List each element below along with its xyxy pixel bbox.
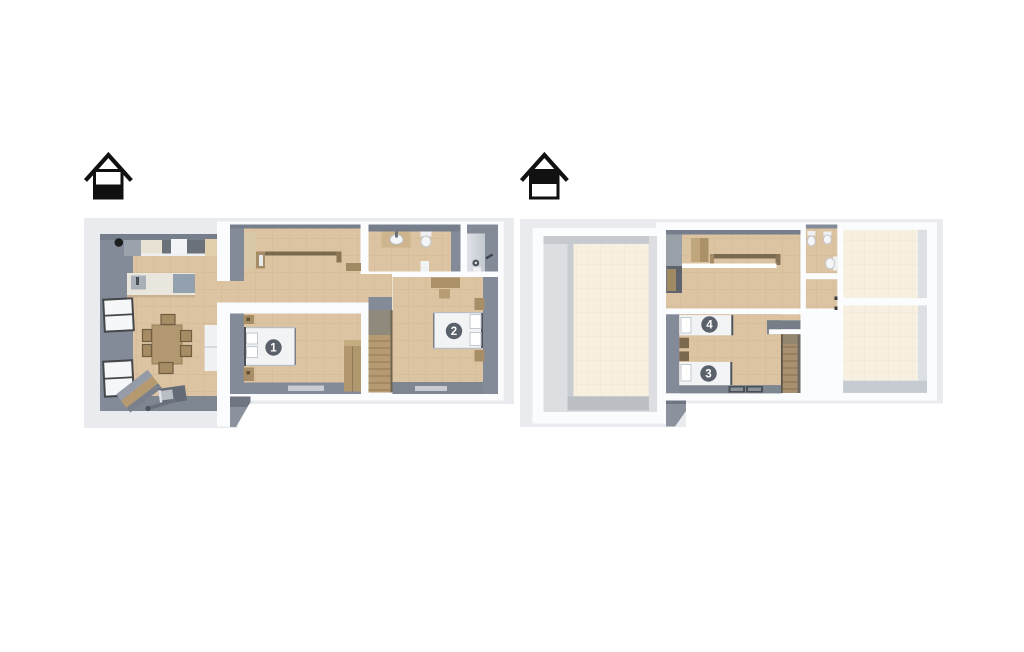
svg-text:2: 2 [451, 326, 457, 338]
svg-text:3: 3 [705, 369, 711, 381]
svg-text:1: 1 [270, 343, 277, 355]
svg-text:4: 4 [706, 320, 713, 332]
